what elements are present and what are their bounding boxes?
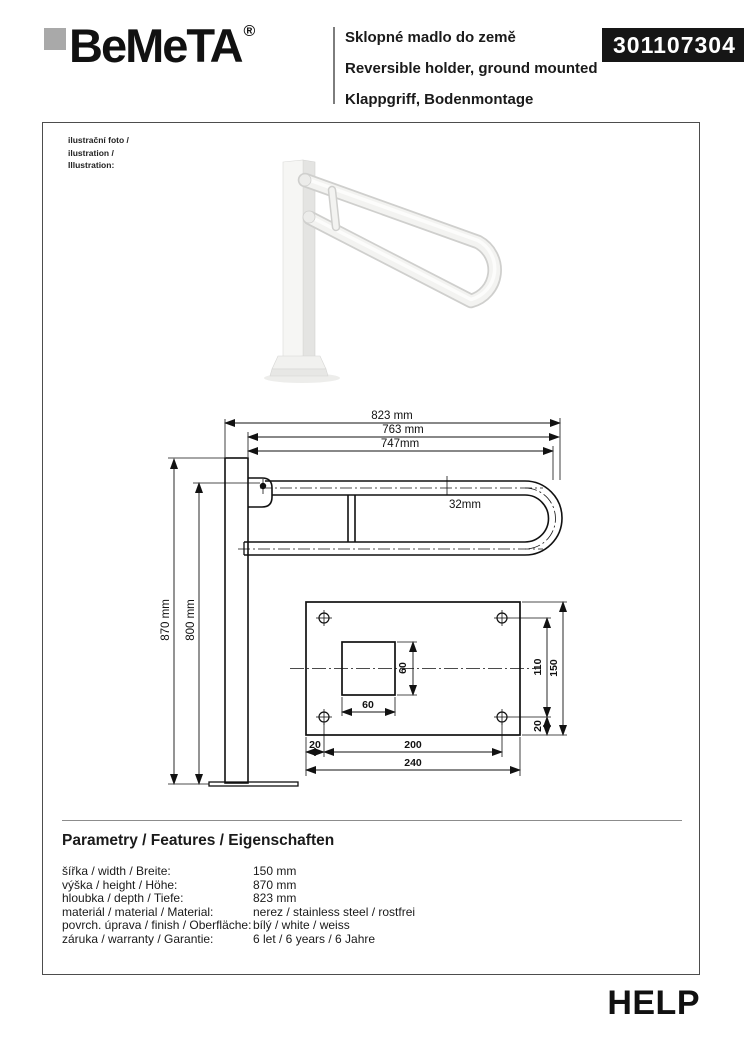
- dim-200-label: 200: [404, 739, 422, 751]
- table-row: hloubka / depth / Tiefe: 823 mm: [62, 892, 415, 906]
- brand-logo: BeMeTA®: [69, 18, 255, 73]
- param-label: výška / height / Höhe:: [62, 879, 253, 893]
- dim-240-label: 240: [404, 757, 422, 769]
- param-value: bílý / white / weiss: [253, 919, 350, 933]
- datasheet-page: BeMeTA® Sklopné madlo do země Reversible…: [0, 0, 744, 1053]
- parameters-heading: Parametry / Features / Eigenschaften: [62, 832, 334, 850]
- handle-pivot-bottom: [303, 211, 315, 223]
- header-divider: [333, 27, 335, 104]
- dim-747-label: 747mm: [381, 438, 419, 450]
- dim-763-label: 763 mm: [382, 424, 424, 436]
- plate-view: [290, 602, 567, 776]
- u-bend-inner: [525, 495, 549, 542]
- brand-logo-square: [44, 28, 66, 50]
- dim-150-label: 150: [548, 659, 560, 677]
- table-row: záruka / warranty / Garantie: 6 let / 6 …: [62, 933, 415, 947]
- side-view: [209, 458, 562, 786]
- registered-mark: ®: [244, 23, 256, 40]
- param-value: 150 mm: [253, 865, 296, 879]
- illustration-label-cs: ilustrační foto /: [68, 134, 129, 147]
- brand-name: BeMeTA: [69, 19, 242, 72]
- param-label: povrch. úprava / finish / Oberfläche:: [62, 919, 253, 933]
- illustration-label-de: Illustration:: [68, 159, 129, 172]
- parameters-divider: [62, 820, 682, 821]
- param-value: 6 let / 6 years / 6 Jahre: [253, 933, 375, 947]
- dim-60v-label: 60: [397, 662, 409, 674]
- centerlines: [238, 488, 555, 549]
- dim-110-label: 110: [532, 658, 544, 675]
- table-row: povrch. úprava / finish / Oberfläche: bí…: [62, 919, 415, 933]
- handle-pivot-top: [299, 174, 311, 186]
- post-outline: [225, 458, 248, 783]
- product-code-badge: 301107304: [602, 28, 744, 62]
- param-label: záruka / warranty / Garantie:: [62, 933, 253, 947]
- table-row: materiál / material / Material: nerez / …: [62, 906, 415, 920]
- param-value: 870 mm: [253, 879, 296, 893]
- technical-drawing: 823 mm 763 mm 747mm 32mm 870 mm 800 mm: [150, 405, 610, 805]
- param-value: 823 mm: [253, 892, 296, 906]
- series-name: HELP: [607, 984, 700, 1023]
- product-title-en: Reversible holder, ground mounted: [345, 53, 598, 84]
- param-label: hloubka / depth / Tiefe:: [62, 892, 253, 906]
- illustration-label: ilustrační foto / ilustration / Illustra…: [68, 134, 129, 172]
- dim-20h-label: 20: [309, 739, 321, 751]
- product-photo: [250, 140, 535, 400]
- post-front-face: [283, 160, 303, 358]
- product-title-cs: Sklopné madlo do země: [345, 22, 598, 53]
- illustration-label-en: ilustration /: [68, 147, 129, 160]
- plate-extension-lines: [306, 602, 567, 776]
- param-value: nerez / stainless steel / rostfrei: [253, 906, 415, 920]
- dim-823-label: 823 mm: [371, 410, 413, 422]
- base-plate-side: [209, 782, 298, 786]
- dim-800-label: 800 mm: [185, 599, 197, 641]
- dim-32-label: 32mm: [449, 499, 481, 511]
- u-bend-outer: [525, 481, 562, 555]
- param-label: materiál / material / Material:: [62, 906, 253, 920]
- product-titles: Sklopné madlo do země Reversible holder,…: [345, 22, 598, 115]
- dim-60h-label: 60: [362, 699, 374, 711]
- dim-870-label: 870 mm: [160, 599, 172, 641]
- product-title-de: Klappgriff, Bodenmontage: [345, 84, 598, 115]
- table-row: šířka / width / Breite: 150 mm: [62, 865, 415, 879]
- parameters-table: šířka / width / Breite: 150 mm výška / h…: [62, 865, 415, 946]
- table-row: výška / height / Höhe: 870 mm: [62, 879, 415, 893]
- base-flange: [272, 356, 326, 369]
- base-flange-edge: [270, 369, 328, 376]
- u-bend-centerline: [525, 488, 555, 549]
- dim-20v-label: 20: [532, 720, 544, 732]
- pivot-bracket: [248, 478, 272, 507]
- plate-dimension-lines: [306, 602, 563, 770]
- param-label: šířka / width / Breite:: [62, 865, 253, 879]
- extension-lines: [168, 418, 560, 784]
